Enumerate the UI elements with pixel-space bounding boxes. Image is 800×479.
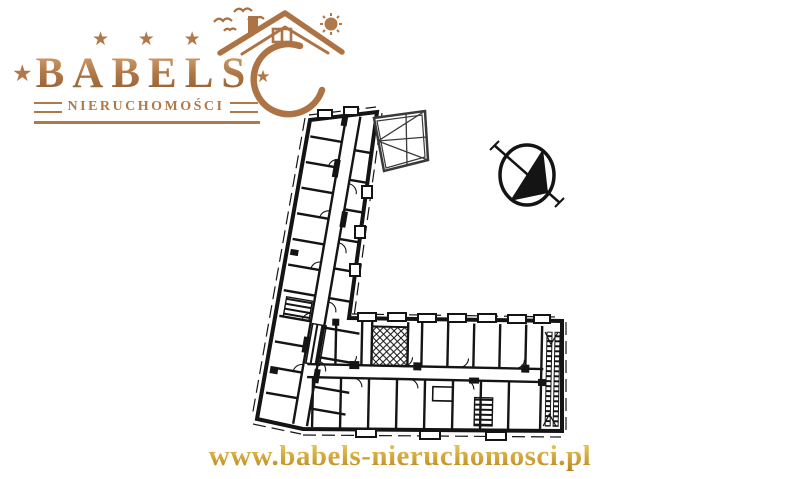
star-icon: ★ <box>12 61 33 87</box>
website-url: www.babels-nieruchomosci.pl <box>0 440 800 473</box>
house-icon <box>212 3 347 121</box>
sun-icon <box>320 13 342 35</box>
logo-stars-row: ★ ★ ★ <box>92 28 213 51</box>
double-rule-left <box>34 102 62 113</box>
real-estate-floorplan-image: ★ ★ ★ ★ BABELS ★ NIERUCHOMOŚCI <box>0 0 800 479</box>
logo-underline <box>34 121 260 124</box>
lower-wing-interior <box>306 318 560 434</box>
staircase <box>283 297 312 321</box>
window-icon <box>273 29 291 42</box>
hatched-area <box>371 326 408 366</box>
brand-logo: ★ ★ ★ ★ BABELS ★ NIERUCHOMOŚCI <box>0 0 370 145</box>
crescent-icon <box>254 44 322 114</box>
triangular-bay <box>374 111 428 171</box>
brand-subtitle: NIERUCHOMOŚCI <box>68 99 225 115</box>
north-compass-icon <box>490 141 564 207</box>
staircase <box>474 398 493 426</box>
